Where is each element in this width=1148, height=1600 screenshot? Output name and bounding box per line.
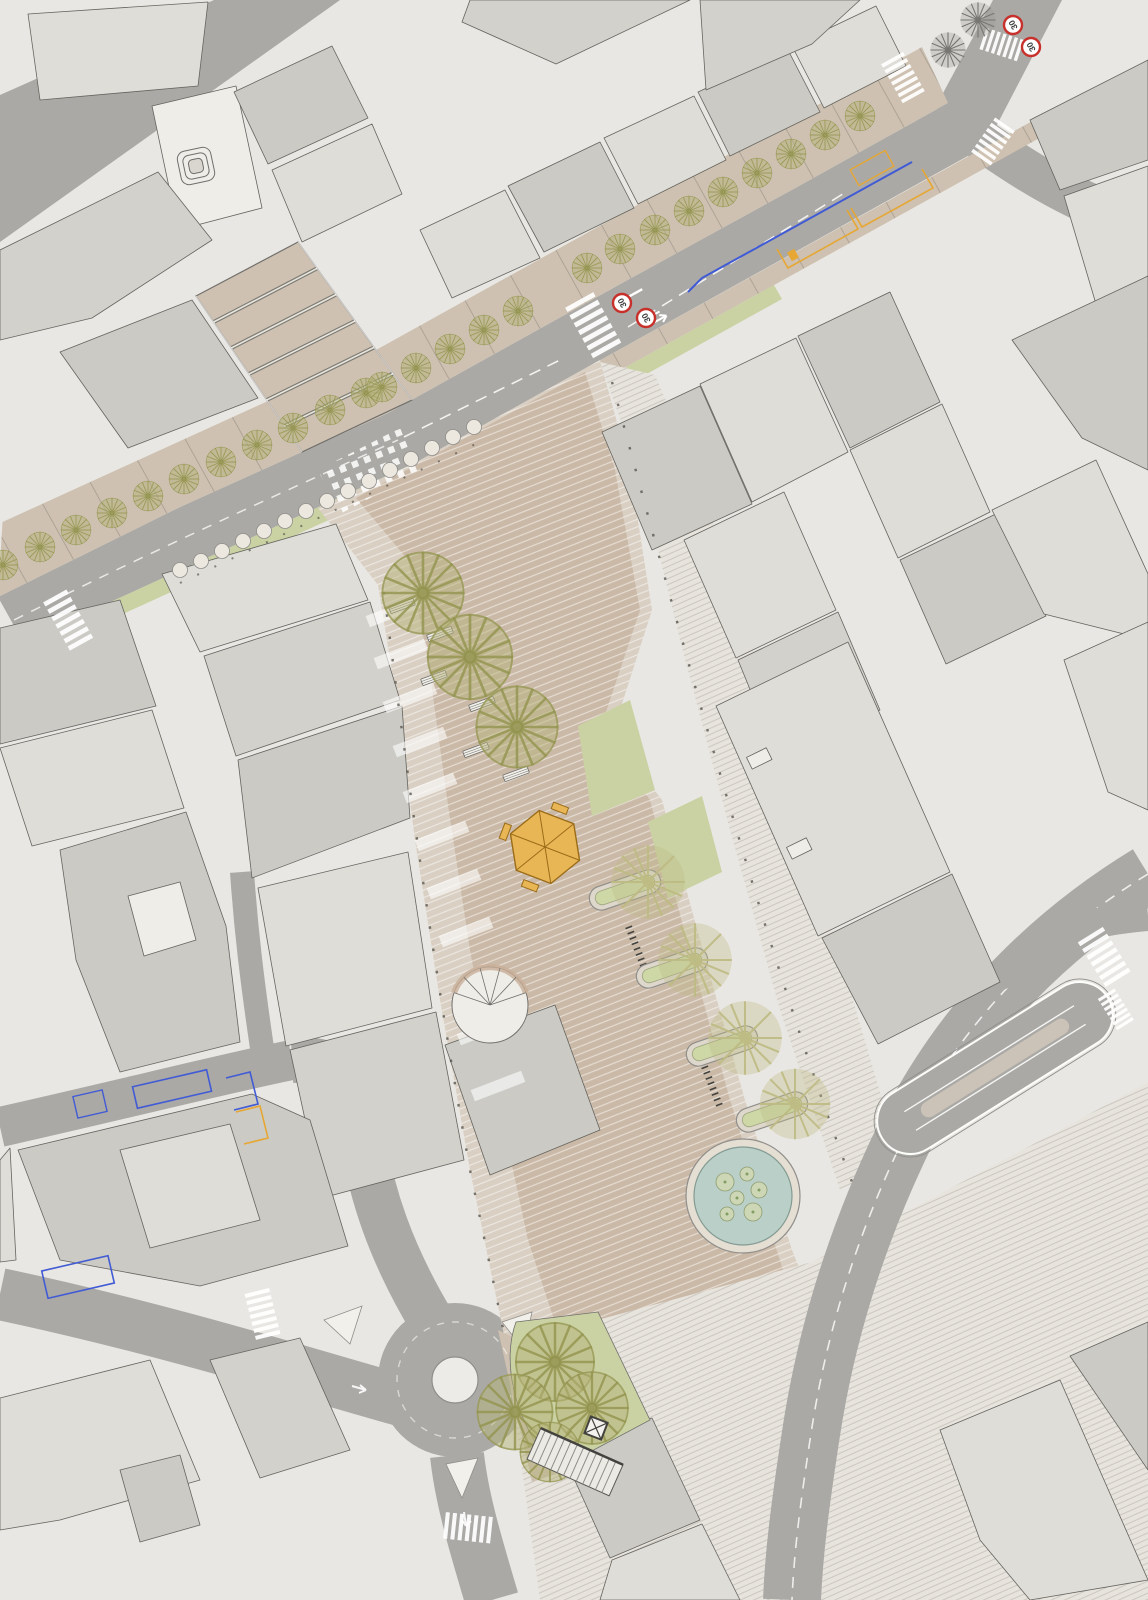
paper-texture — [0, 0, 1148, 1600]
site-plan-canvas: 30 30 30 30 — [0, 0, 1148, 1600]
site-plan-page: 30 30 30 30 — [0, 0, 1148, 1600]
